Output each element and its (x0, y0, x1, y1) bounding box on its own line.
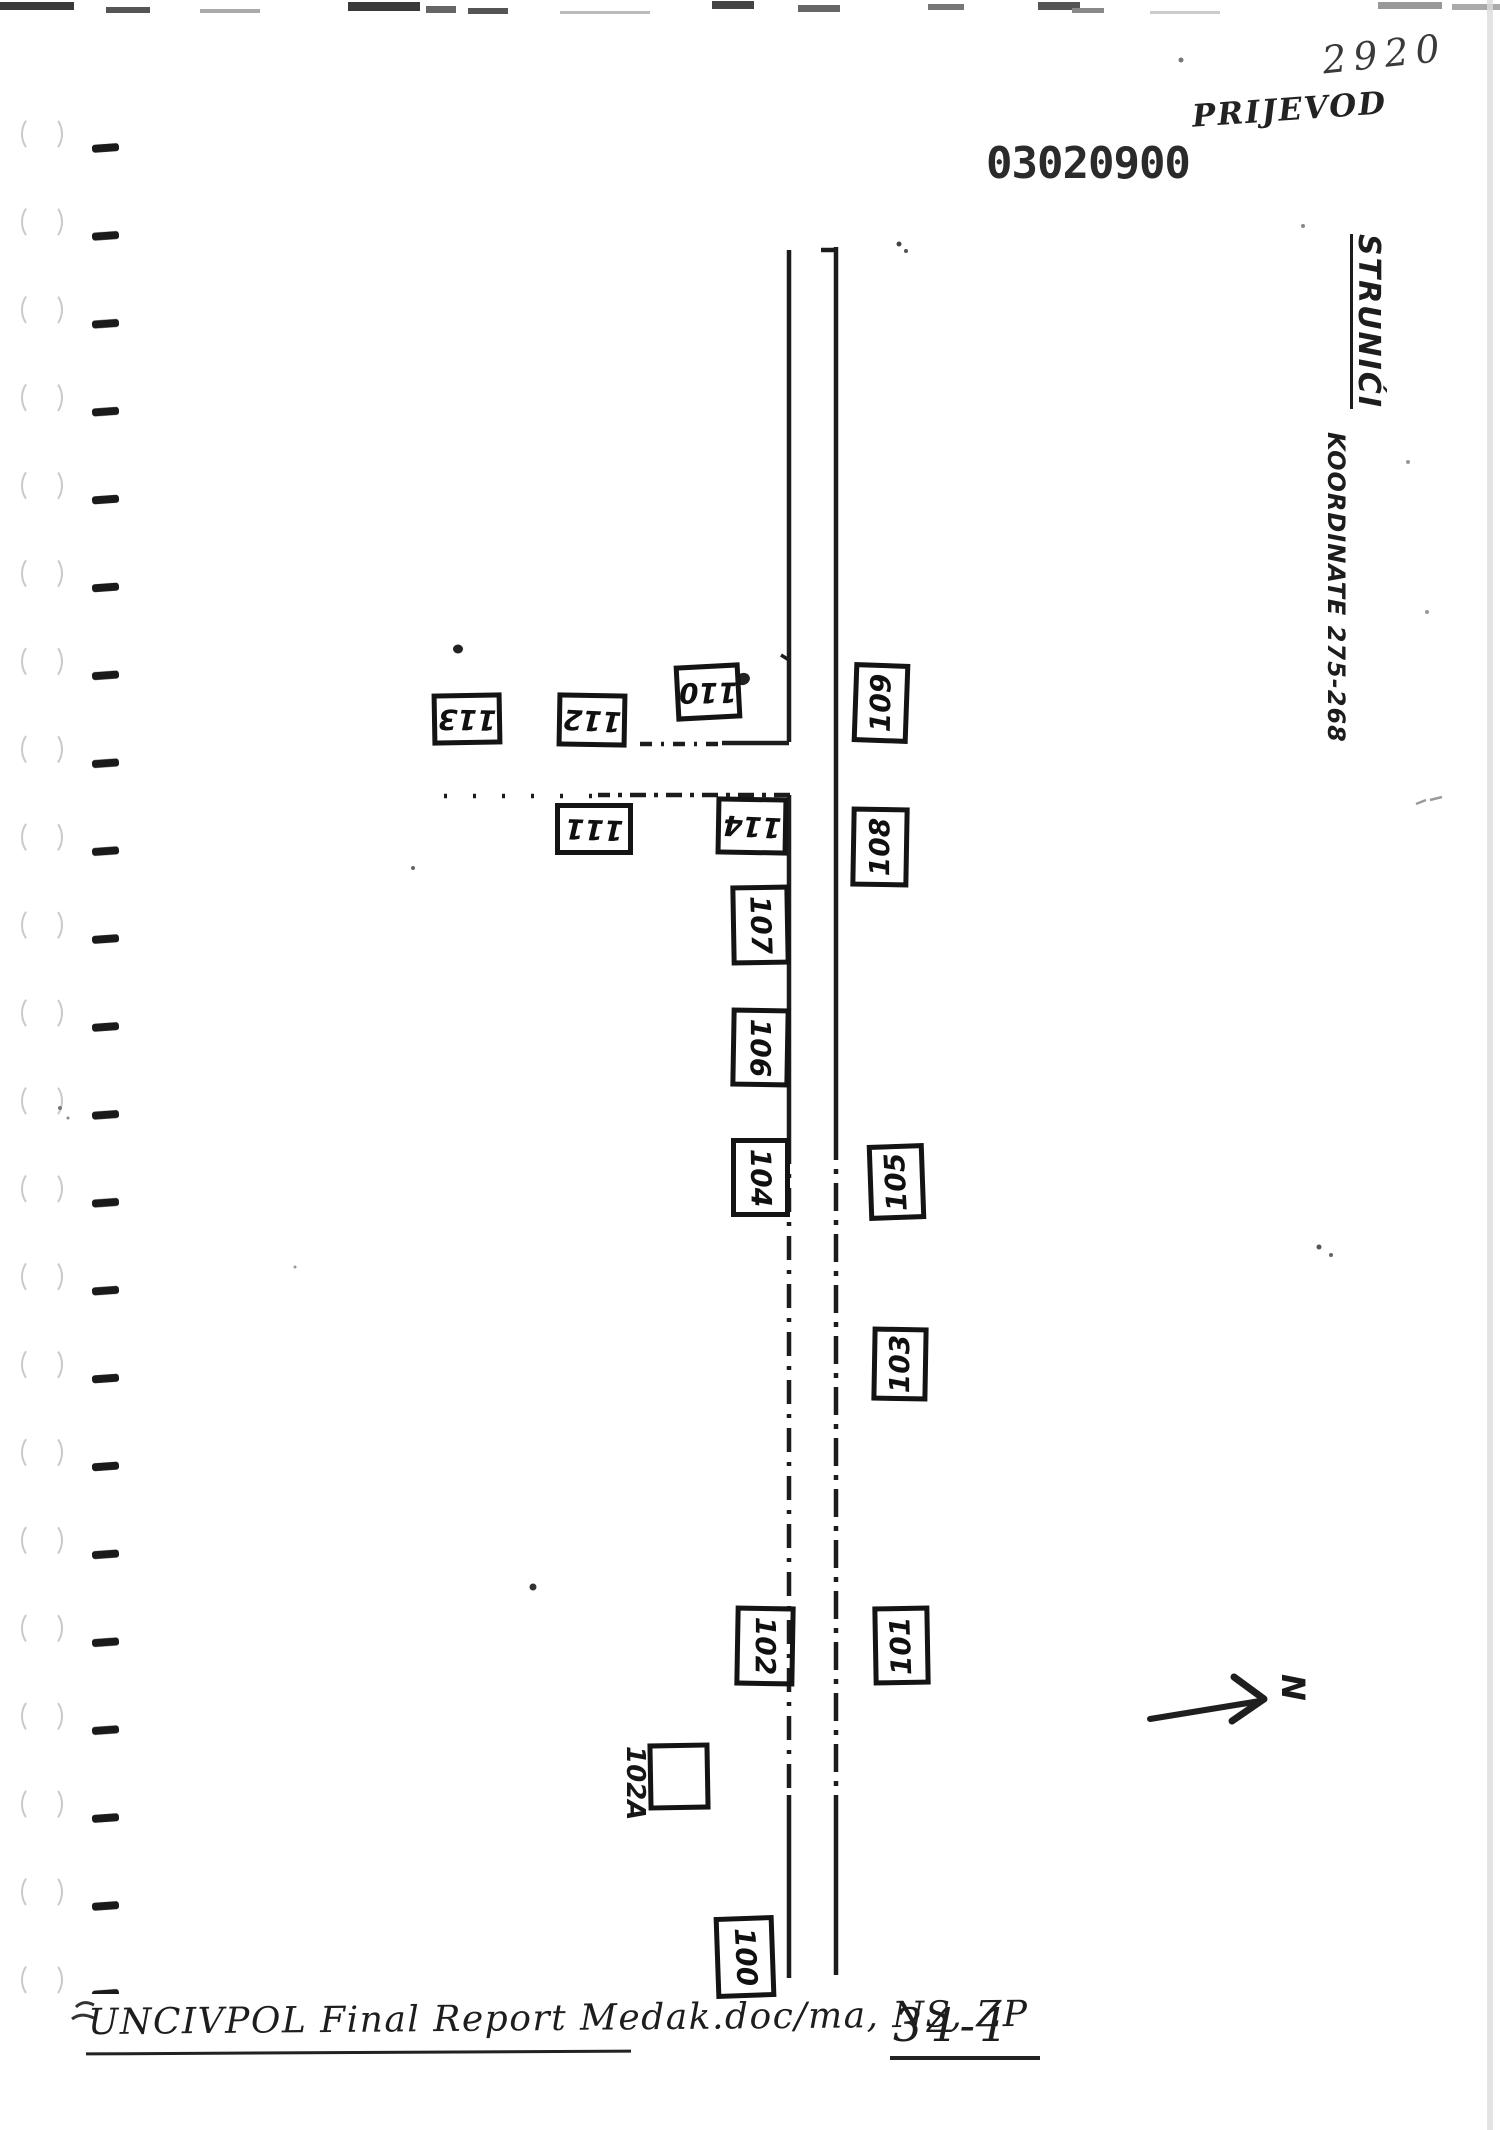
house-box-105: 105 (867, 1143, 927, 1221)
house-number-label: 111 (564, 814, 623, 844)
side-path-lines (424, 743, 790, 796)
village-title: STRUNIĆI (1351, 234, 1386, 409)
house-number-label: 112 (562, 704, 622, 735)
house-number-label: 114 (722, 810, 782, 841)
house-box-102: 102 (734, 1605, 795, 1686)
coordinates-label: KOORDINATE 275-268 (1322, 432, 1350, 743)
house-number-label: 104 (746, 1148, 775, 1207)
house-box-112: 112 (557, 692, 628, 747)
house-number-label: 105 (881, 1152, 912, 1212)
north-label: N (1274, 1674, 1312, 1701)
house-box-107: 107 (730, 884, 790, 965)
house-number-label: 106 (747, 1018, 775, 1076)
house-number-label: 108 (866, 818, 894, 876)
house-annex-label: 102A (620, 1746, 650, 1820)
footer-note: UNCIVPOL Final Report Medak.doc/ma, NS, … (88, 1994, 1029, 2043)
house-number-label: 102 (751, 1617, 779, 1675)
house-box-111: 111 (555, 803, 633, 855)
scanned-map-page: 2920 PRIJEVOD 03020900 STRUNIĆI KOORDINA… (0, 0, 1500, 2130)
house-box-110: 110 (674, 662, 743, 721)
house-number-label: 103 (886, 1335, 914, 1393)
house-box-104: 104 (731, 1138, 790, 1217)
page-number: 34-1 (893, 1998, 1012, 2052)
house-box-114: 114 (715, 796, 788, 855)
house-box-103: 103 (871, 1327, 928, 1402)
house-box-108: 108 (850, 807, 909, 888)
house-box-102a-empty (647, 1742, 710, 1810)
house-number-label: 110 (679, 677, 738, 706)
house-box-101: 101 (872, 1606, 930, 1686)
house-number-label: 101 (886, 1616, 916, 1675)
house-box-113: 113 (432, 692, 503, 745)
house-box-106: 106 (730, 1007, 790, 1087)
house-number-label: 109 (866, 674, 895, 733)
north-arrow (1150, 1677, 1264, 1721)
house-box-109: 109 (852, 662, 911, 744)
house-number-label: 113 (438, 704, 497, 733)
road-lines (781, 247, 836, 1978)
page-number-underline (890, 2056, 1040, 2060)
stamp-number: 03020900 (986, 138, 1190, 189)
house-box-100: 100 (714, 1915, 777, 1999)
binder-marks (0, 104, 140, 1994)
house-number-label: 107 (745, 895, 775, 954)
scan-smudges (0, 1, 1500, 14)
page-edge-shadow (1487, 0, 1493, 2130)
house-number-label: 100 (729, 1927, 760, 1987)
